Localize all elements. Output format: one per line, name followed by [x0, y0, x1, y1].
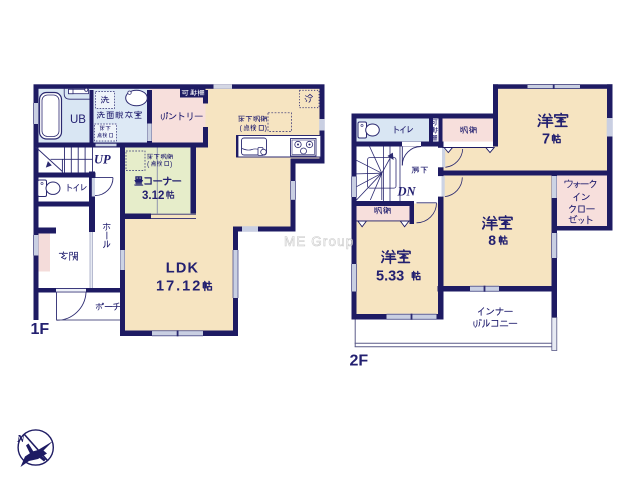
- svg-text:): ): [170, 162, 172, 169]
- svg-text:UB: UB: [70, 114, 86, 126]
- svg-text:LDK: LDK: [166, 261, 199, 277]
- svg-text:7: 7: [542, 131, 550, 147]
- svg-text:1F: 1F: [31, 321, 50, 338]
- svg-text:3.12: 3.12: [142, 190, 164, 202]
- svg-text:8: 8: [488, 232, 496, 248]
- svg-text:5.33: 5.33: [376, 268, 404, 284]
- svg-text:ME Group: ME Group: [284, 234, 354, 249]
- svg-text:2F: 2F: [350, 353, 369, 370]
- svg-text:17.12: 17.12: [156, 279, 202, 295]
- svg-text:N: N: [16, 434, 25, 445]
- svg-text:UP: UP: [94, 153, 111, 167]
- svg-text:DN: DN: [397, 185, 417, 199]
